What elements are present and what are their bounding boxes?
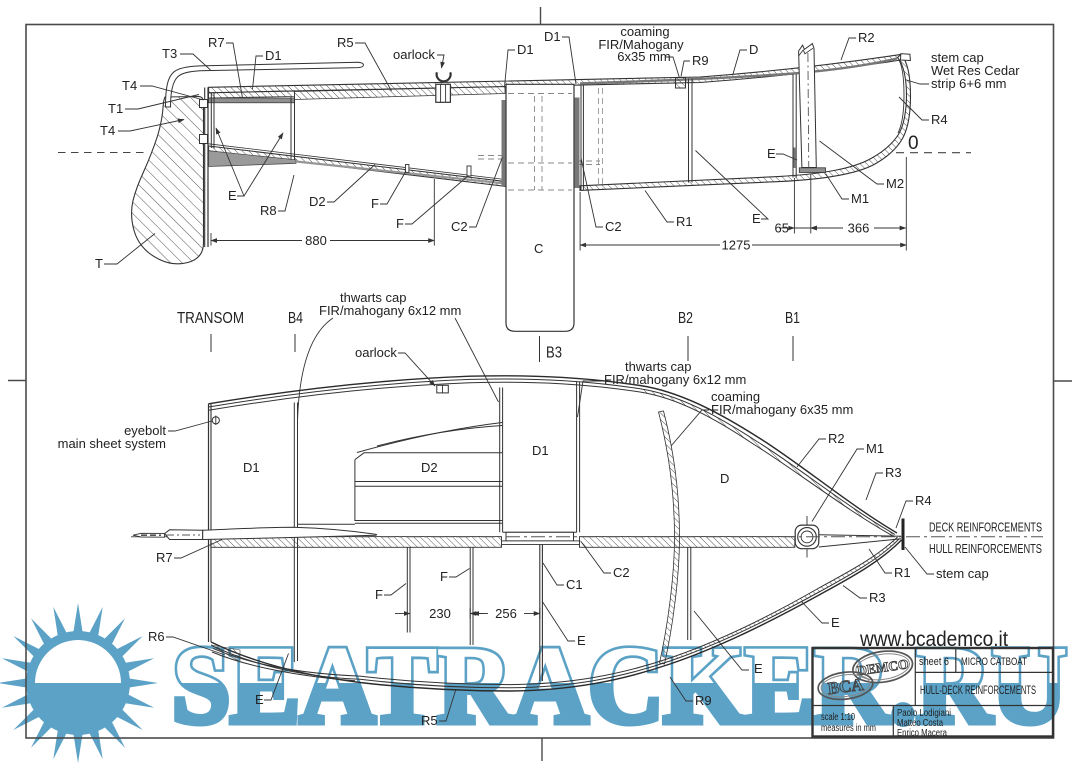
svg-text:R4: R4 bbox=[931, 112, 948, 127]
svg-text:strip 6+6 mm: strip 6+6 mm bbox=[931, 76, 1007, 91]
svg-text:main sheet system: main sheet system bbox=[58, 436, 166, 451]
svg-text:FIR/mahogany 6x12 mm: FIR/mahogany 6x12 mm bbox=[604, 372, 746, 387]
svg-text:MICRO CATBOAT: MICRO CATBOAT bbox=[961, 656, 1027, 668]
svg-text:366: 366 bbox=[848, 221, 870, 236]
svg-text:R3: R3 bbox=[869, 590, 886, 605]
svg-text:T: T bbox=[95, 256, 103, 271]
svg-text:measures in mm: measures in mm bbox=[821, 723, 876, 734]
svg-text:230: 230 bbox=[429, 606, 451, 621]
svg-text:E: E bbox=[577, 633, 586, 648]
svg-text:R2: R2 bbox=[858, 30, 875, 45]
svg-text:R9: R9 bbox=[695, 693, 712, 708]
svg-text:F: F bbox=[375, 587, 383, 602]
svg-text:R1: R1 bbox=[894, 565, 911, 580]
svg-text:D1: D1 bbox=[243, 460, 260, 475]
svg-text:E: E bbox=[754, 661, 763, 676]
svg-text:R1: R1 bbox=[676, 214, 693, 229]
svg-text:D2: D2 bbox=[309, 194, 326, 209]
svg-text:D: D bbox=[720, 471, 729, 486]
svg-text:R6: R6 bbox=[148, 629, 165, 644]
svg-text:B2: B2 bbox=[678, 310, 693, 327]
svg-text:F: F bbox=[396, 216, 404, 231]
svg-text:R4: R4 bbox=[915, 493, 932, 508]
svg-text:sheet 6: sheet 6 bbox=[919, 656, 949, 668]
svg-text:C: C bbox=[534, 241, 543, 256]
svg-text:D1: D1 bbox=[544, 29, 561, 44]
svg-text:0: 0 bbox=[908, 133, 919, 154]
svg-text:T1: T1 bbox=[108, 101, 123, 116]
svg-text:M1: M1 bbox=[866, 441, 884, 456]
svg-text:T4: T4 bbox=[122, 78, 137, 93]
svg-text:TRANSOM: TRANSOM bbox=[177, 310, 244, 327]
svg-text:T3: T3 bbox=[162, 46, 177, 61]
svg-text:E: E bbox=[767, 146, 776, 161]
svg-text:FIR/mahogany 6x35 mm: FIR/mahogany 6x35 mm bbox=[711, 402, 853, 417]
svg-text:E: E bbox=[228, 188, 237, 203]
svg-text:D1: D1 bbox=[517, 42, 534, 57]
svg-text:M2: M2 bbox=[886, 176, 904, 191]
svg-text:HULL REINFORCEMENTS: HULL REINFORCEMENTS bbox=[929, 541, 1042, 556]
svg-text:R5: R5 bbox=[421, 713, 438, 728]
svg-text:M1: M1 bbox=[851, 191, 869, 206]
svg-text:B3: B3 bbox=[546, 345, 562, 362]
svg-text:E: E bbox=[831, 615, 840, 630]
svg-text:D1: D1 bbox=[532, 443, 549, 458]
svg-text:D1: D1 bbox=[265, 48, 282, 63]
svg-text:scale 1:10: scale 1:10 bbox=[821, 712, 855, 723]
svg-text:65: 65 bbox=[775, 221, 789, 236]
svg-text:E: E bbox=[752, 211, 761, 226]
svg-text:oarlock: oarlock bbox=[355, 345, 397, 360]
svg-text:B4: B4 bbox=[288, 310, 303, 327]
svg-text:R5: R5 bbox=[337, 35, 354, 50]
svg-text:880: 880 bbox=[305, 233, 327, 248]
svg-text:stem cap: stem cap bbox=[936, 566, 989, 581]
svg-text:R8: R8 bbox=[260, 203, 277, 218]
svg-text:R7: R7 bbox=[208, 35, 225, 50]
svg-text:FIR/mahogany 6x12 mm: FIR/mahogany 6x12 mm bbox=[319, 303, 461, 318]
svg-text:C2: C2 bbox=[605, 219, 622, 234]
svg-text:E: E bbox=[255, 692, 264, 707]
svg-text:B1: B1 bbox=[785, 310, 800, 327]
svg-text:D: D bbox=[749, 42, 758, 57]
svg-text:R9: R9 bbox=[692, 53, 709, 68]
svg-text:R2: R2 bbox=[828, 431, 845, 446]
svg-text:F: F bbox=[371, 196, 379, 211]
svg-text:C2: C2 bbox=[613, 565, 630, 580]
svg-text:oarlock: oarlock bbox=[393, 47, 435, 62]
svg-text:6x35 mm: 6x35 mm bbox=[617, 49, 670, 64]
svg-text:1275: 1275 bbox=[722, 238, 751, 253]
svg-text:HULL-DECK REINFORCEMENTS: HULL-DECK REINFORCEMENTS bbox=[920, 683, 1036, 697]
svg-text:256: 256 bbox=[495, 606, 517, 621]
svg-text:C2: C2 bbox=[451, 219, 468, 234]
svg-text:R3: R3 bbox=[885, 465, 902, 480]
svg-text:R7: R7 bbox=[156, 550, 173, 565]
svg-text:F: F bbox=[440, 569, 448, 584]
svg-text:Enrico Macera: Enrico Macera bbox=[897, 728, 947, 739]
svg-text:D2: D2 bbox=[421, 460, 438, 475]
svg-text:DECK REINFORCEMENTS: DECK REINFORCEMENTS bbox=[929, 520, 1042, 535]
svg-text:T4: T4 bbox=[100, 123, 115, 138]
svg-text:C1: C1 bbox=[566, 577, 583, 592]
